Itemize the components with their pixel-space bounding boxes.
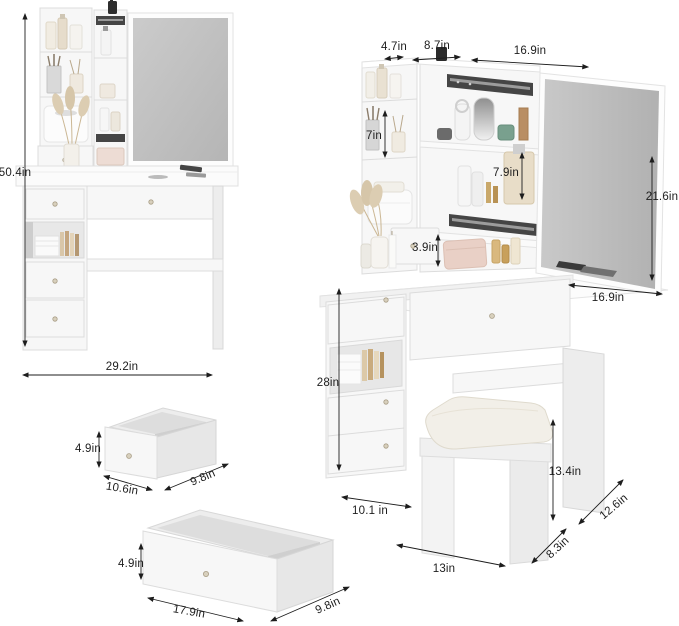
dim-shelf-height: 7in [366,130,382,142]
dim-desk-height: 28in [317,377,340,389]
arrow-top-depth [385,57,403,59]
furniture-illustration [0,0,679,626]
dim-stool-height: 13.4in [549,466,582,478]
stool [420,397,553,564]
product-dimension-diagram: 50.4in 29.2in 4.9in 10.6in 9.8in 4.9in 1… [0,0,679,626]
dim-desktop-depth: 16.9in [592,292,625,304]
dim-knee-width: 10.1 in [352,505,388,517]
mirror [133,18,228,161]
dim-top-shelf-width: 8.7in [424,40,450,52]
dim-hutch-drawer-height: 3.9in [412,242,438,254]
perspective-vanity-figure [320,47,668,564]
dim-small-drawer-height: 4.9in [75,443,101,455]
dim-overall-width: 29.2in [106,361,139,373]
front-vanity-figure [16,0,238,350]
large-drawer-figure [143,510,333,612]
small-drawer-figure [105,408,216,479]
dim-stool-width: 13in [433,563,456,575]
dim-large-drawer-height: 4.9in [118,558,144,570]
dim-mirror-height: 21.6in [646,191,679,203]
dim-top-mirror-width: 16.9in [514,45,547,57]
dim-mid-shelf-height: 7.9in [493,167,519,179]
books [337,349,384,384]
dim-overall-height: 50.4in [0,167,31,179]
dim-top-depth: 4.7in [381,41,407,53]
